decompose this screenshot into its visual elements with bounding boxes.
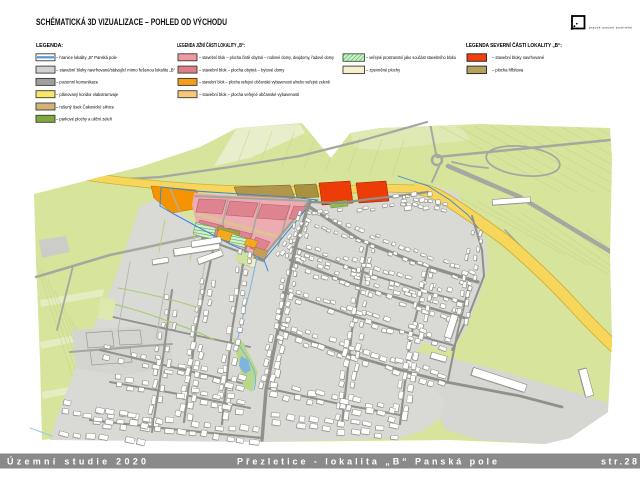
svg-text:ptacek osycek architekti: ptacek osycek architekti: [589, 25, 633, 29]
svg-text:LEGENDA SEVERNÍ ČÁSTI LOKALITY: LEGENDA SEVERNÍ ČÁSTI LOKALITY „B“:: [466, 41, 562, 49]
svg-text:Přezletice - lokalita „B“ Pans: Přezletice - lokalita „B“ Panská pole: [237, 457, 497, 467]
svg-text:– stavební blok – plocha veřej: – stavební blok – plocha veřejné občansk…: [199, 80, 331, 85]
svg-text:– stavební bloky navrhované/st: – stavební bloky navrhované/stávající mi…: [56, 67, 176, 72]
svg-text:– stavební blok – plocha obytn: – stavební blok – plocha obytná – bytové…: [199, 67, 285, 72]
svg-text:SCHÉMATICKÁ 3D VIZUALIZACE – P: SCHÉMATICKÁ 3D VIZUALIZACE – POHLED OD V…: [36, 16, 227, 27]
svg-text:– stavební blok – plocha čistě: – stavební blok – plocha čistě obytná – …: [199, 55, 335, 60]
svg-text:LEGENDA JIŽNÍ ČÁSTI LOKALITY „: LEGENDA JIŽNÍ ČÁSTI LOKALITY „B“:: [177, 41, 245, 49]
svg-text:– veřejné prostranství jako so: – veřejné prostranství jako součást stav…: [366, 55, 456, 60]
svg-text:– hranice lokality „B“ Panská: – hranice lokality „B“ Panská pole: [56, 55, 117, 60]
svg-text:– plánovaný koridor vlakotramv: – plánovaný koridor vlakotramvaje: [56, 92, 119, 97]
svg-text:– stavební blok – plocha veřej: – stavební blok – plocha veřejné občansk…: [199, 92, 299, 97]
svg-text:– zpevněné plochy: – zpevněné plochy: [366, 67, 401, 72]
svg-text:– stavební bloky navrhované: – stavební bloky navrhované: [492, 55, 545, 60]
svg-text:– plocha hřbitova: – plocha hřbitova: [492, 67, 524, 72]
svg-text:LEGENDA:: LEGENDA:: [36, 43, 63, 49]
svg-text:– pozemní komunikace: – pozemní komunikace: [56, 80, 99, 85]
svg-text:– parkové plochy a uliční zele: – parkové plochy a uliční zeleň: [56, 117, 113, 122]
svg-text:– rušený úsek Čakovické silnic: – rušený úsek Čakovické silnice: [56, 104, 115, 109]
